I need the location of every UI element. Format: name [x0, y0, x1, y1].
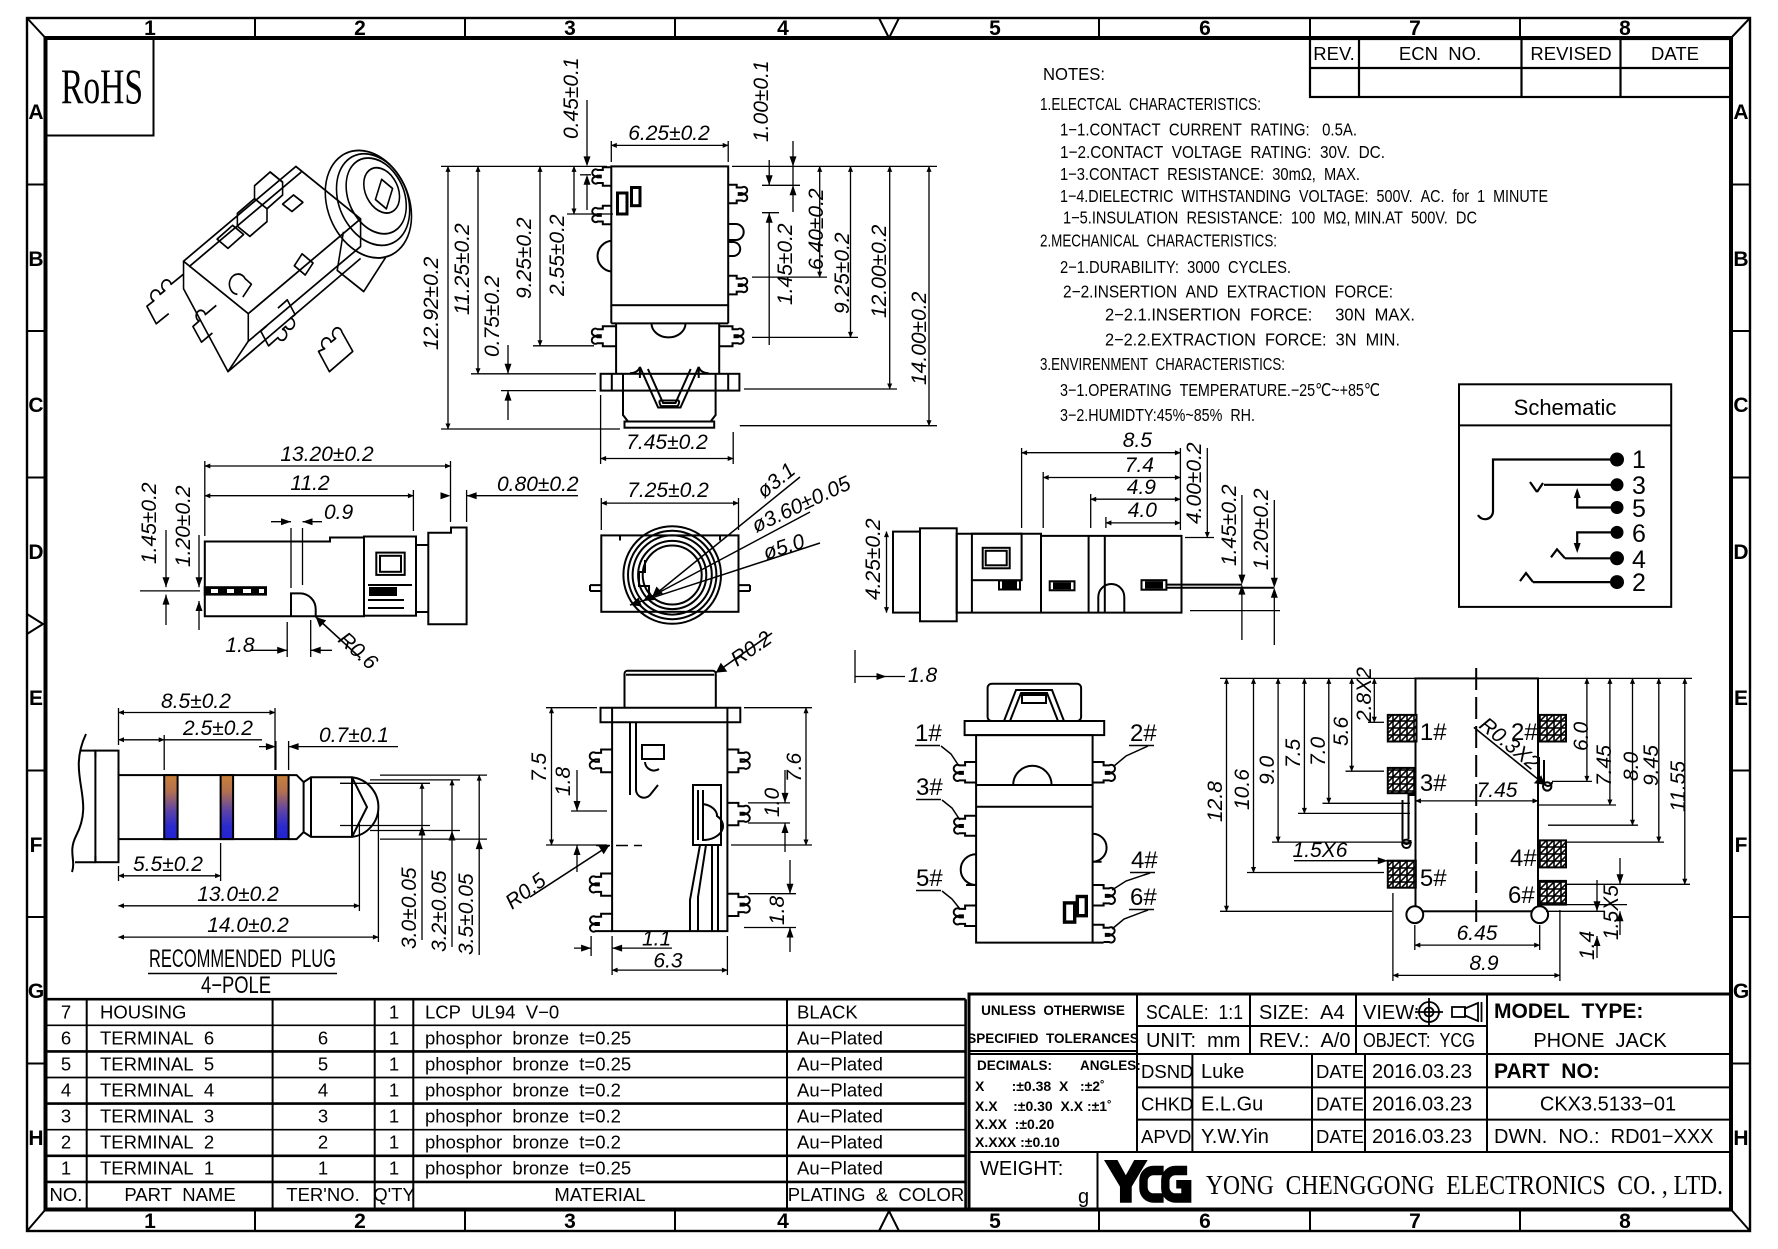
svg-text:3.5±0.05: 3.5±0.05 [455, 873, 478, 955]
svg-text:12.92±0.2: 12.92±0.2 [420, 256, 443, 350]
svg-text:1: 1 [389, 1132, 399, 1153]
svg-text:1.1: 1.1 [642, 928, 671, 951]
svg-text:5: 5 [61, 1054, 71, 1075]
svg-text:DECIMALS:: DECIMALS: [977, 1058, 1052, 1073]
svg-text:7.4: 7.4 [1125, 454, 1154, 477]
svg-text:2016.03.23: 2016.03.23 [1372, 1094, 1472, 1116]
svg-text:4: 4 [777, 17, 789, 40]
svg-text:phosphor bronze t=0.25: phosphor bronze t=0.25 [425, 1054, 631, 1075]
svg-text:H: H [1733, 1127, 1748, 1150]
svg-text:9.25±0.2: 9.25±0.2 [513, 217, 536, 299]
svg-text:3−1.OPERATING TEMPERATURE.−25: 3−1.OPERATING TEMPERATURE.−25℃~+85℃ [1060, 380, 1380, 400]
svg-text:2−2.2.EXTRACTION FORCE: 3N: 2−2.2.EXTRACTION FORCE: 3N MIN. [1105, 330, 1400, 350]
svg-text:X :±0.38 X :±2˚: X :±0.38 X :±2˚ [975, 1078, 1105, 1094]
svg-text:TERMINAL 3: TERMINAL 3 [100, 1106, 214, 1127]
svg-text:2.55±0.2: 2.55±0.2 [546, 214, 569, 297]
svg-text:VIEW:: VIEW: [1363, 1002, 1419, 1024]
svg-text:1.8: 1.8 [908, 664, 938, 687]
svg-text:7: 7 [1409, 17, 1421, 40]
svg-text:phosphor bronze t=0.25: phosphor bronze t=0.25 [425, 1028, 631, 1049]
svg-text:1: 1 [389, 1002, 399, 1023]
svg-text:7.45: 7.45 [1477, 779, 1518, 802]
svg-text:11.55: 11.55 [1667, 761, 1690, 812]
svg-text:6: 6 [1199, 1210, 1211, 1233]
svg-text:1.45±0.2: 1.45±0.2 [138, 482, 161, 564]
svg-text:CHKD: CHKD [1141, 1094, 1193, 1115]
svg-text:phosphor bronze t=0.2: phosphor bronze t=0.2 [425, 1106, 621, 1127]
svg-text:2#: 2# [1130, 720, 1157, 747]
svg-text:0.80±0.2: 0.80±0.2 [497, 473, 579, 496]
svg-text:1.0: 1.0 [761, 787, 784, 817]
svg-text:4: 4 [61, 1080, 71, 1101]
svg-text:2: 2 [61, 1132, 71, 1153]
svg-text:TERMINAL 6: TERMINAL 6 [100, 1028, 214, 1049]
svg-text:RoHS: RoHS [61, 58, 143, 114]
svg-text:7: 7 [1409, 1210, 1421, 1233]
svg-text:g: g [1078, 1186, 1089, 1208]
svg-text:phosphor bronze t=0.2: phosphor bronze t=0.2 [425, 1080, 621, 1101]
svg-text:NOTES:: NOTES: [1043, 64, 1105, 84]
svg-text:PART NO:: PART NO: [1494, 1060, 1600, 1083]
svg-text:3−2.HUMIDTY:45%~85% RH.: 3−2.HUMIDTY:45%~85% RH. [1060, 405, 1255, 425]
svg-text:13.20±0.2: 13.20±0.2 [280, 443, 374, 466]
svg-text:X.XXX :±0.10: X.XXX :±0.10 [975, 1134, 1060, 1150]
svg-text:D: D [1733, 541, 1748, 564]
svg-text:5.5±0.2: 5.5±0.2 [133, 853, 203, 876]
svg-text:1.5X5: 1.5X5 [1600, 885, 1623, 940]
svg-text:13.0±0.2: 13.0±0.2 [197, 883, 279, 906]
svg-text:6#: 6# [1508, 882, 1535, 909]
svg-text:1.20±0.2: 1.20±0.2 [172, 485, 195, 567]
svg-text:8.9: 8.9 [1469, 952, 1499, 975]
svg-text:C: C [1733, 394, 1748, 417]
svg-text:8: 8 [1619, 17, 1631, 40]
svg-text:5#: 5# [916, 865, 943, 892]
svg-text:7.5: 7.5 [1282, 738, 1305, 768]
svg-text:DATE: DATE [1316, 1061, 1364, 1082]
svg-text:3#: 3# [916, 774, 943, 801]
svg-text:1: 1 [389, 1028, 399, 1049]
svg-text:1−1.CONTACT CURRENT RATING:: 1−1.CONTACT CURRENT RATING: 0.5A. [1060, 120, 1357, 140]
svg-text:4#: 4# [1131, 847, 1158, 874]
svg-text:5: 5 [318, 1054, 328, 1075]
svg-text:2.MECHANICAL CHARACTERISTICS:: 2.MECHANICAL CHARACTERISTICS: [1040, 231, 1277, 251]
svg-text:7.0: 7.0 [1307, 736, 1330, 766]
svg-text:DATE: DATE [1316, 1126, 1364, 1147]
svg-text:Y.W.Yin: Y.W.Yin [1201, 1126, 1269, 1148]
svg-text:APVD: APVD [1141, 1126, 1191, 1147]
svg-text:0.7±0.1: 0.7±0.1 [319, 724, 389, 747]
svg-text:4.25±0.2: 4.25±0.2 [862, 518, 885, 600]
svg-text:8.5±0.2: 8.5±0.2 [161, 690, 231, 713]
svg-text:F: F [30, 834, 43, 857]
svg-text:1: 1 [389, 1054, 399, 1075]
svg-text:1.4: 1.4 [1576, 931, 1599, 960]
svg-text:DWN. NO.: RD01−XXX: DWN. NO.: RD01−XXX [1494, 1126, 1714, 1148]
svg-text:7: 7 [61, 1002, 71, 1023]
svg-text:4: 4 [777, 1210, 789, 1233]
svg-text:7.25±0.2: 7.25±0.2 [627, 479, 709, 502]
svg-text:14.00±0.2: 14.00±0.2 [908, 291, 931, 385]
svg-text:4: 4 [318, 1080, 328, 1101]
svg-text:1.45±0.2: 1.45±0.2 [1218, 484, 1241, 566]
svg-text:12.00±0.2: 12.00±0.2 [868, 224, 891, 318]
svg-text:6: 6 [1199, 17, 1211, 40]
svg-text:9.25±0.2: 9.25±0.2 [831, 232, 854, 314]
svg-text:1−5.INSULATION RESISTANCE: 1: 1−5.INSULATION RESISTANCE: 100 MΩ, MIN.A… [1063, 208, 1477, 228]
svg-text:Au−Plated: Au−Plated [797, 1080, 883, 1101]
svg-text:1.8: 1.8 [225, 634, 255, 657]
svg-text:12.8: 12.8 [1204, 781, 1227, 822]
svg-text:BLACK: BLACK [797, 1002, 858, 1023]
svg-text:PLATING & COLOR: PLATING & COLOR [788, 1184, 964, 1205]
svg-text:8.5: 8.5 [1123, 429, 1153, 452]
svg-text:H: H [28, 1127, 43, 1150]
svg-text:2−1.DURABILITY: 3000 CYCLES.: 2−1.DURABILITY: 3000 CYCLES. [1060, 257, 1291, 277]
svg-text:1: 1 [389, 1106, 399, 1127]
svg-text:DATE: DATE [1316, 1094, 1364, 1115]
svg-text:10.6: 10.6 [1231, 769, 1254, 810]
svg-text:6: 6 [61, 1028, 71, 1049]
svg-text:PART NAME: PART NAME [124, 1184, 235, 1205]
svg-text:TERMINAL 1: TERMINAL 1 [100, 1158, 214, 1179]
svg-text:2016.03.23: 2016.03.23 [1372, 1061, 1472, 1083]
svg-text:1.8: 1.8 [552, 766, 575, 796]
svg-text:7.5: 7.5 [528, 752, 551, 782]
svg-text:8: 8 [1619, 1210, 1631, 1233]
svg-text:A: A [28, 101, 43, 124]
svg-text:1.8: 1.8 [766, 895, 789, 925]
svg-text:HOUSING: HOUSING [100, 1002, 186, 1023]
svg-text:1: 1 [389, 1080, 399, 1101]
svg-text:REV.: REV. [1313, 43, 1354, 64]
svg-text:1.ELECTCAL CHARACTERISTICS:: 1.ELECTCAL CHARACTERISTICS: [1040, 94, 1261, 114]
svg-text:6.3: 6.3 [653, 950, 683, 973]
svg-text:SCALE: 1:1: SCALE: 1:1 [1146, 1002, 1243, 1024]
svg-text:3: 3 [318, 1106, 328, 1127]
svg-text:2016.03.23: 2016.03.23 [1372, 1126, 1472, 1148]
svg-text:2−2.1.INSERTION FORCE: 30: 2−2.1.INSERTION FORCE: 30N MAX. [1105, 305, 1415, 325]
svg-text:11.2: 11.2 [290, 472, 330, 495]
svg-text:G: G [28, 980, 44, 1003]
svg-text:0.9: 0.9 [324, 501, 354, 524]
svg-text:1.45±0.2: 1.45±0.2 [774, 223, 797, 305]
svg-text:1: 1 [389, 1158, 399, 1179]
svg-text:D: D [28, 541, 43, 564]
svg-text:G: G [1733, 980, 1749, 1003]
svg-text:F: F [1735, 834, 1748, 857]
svg-text:RECOMMENDED PLUG: RECOMMENDED PLUG [149, 945, 336, 973]
svg-text:UNLESS OTHERWISE: UNLESS OTHERWISE [981, 1003, 1125, 1018]
svg-text:PHONE JACK: PHONE JACK [1533, 1030, 1667, 1052]
svg-text:1.20±0.2: 1.20±0.2 [1250, 488, 1273, 570]
svg-text:5.6: 5.6 [1330, 716, 1353, 746]
svg-text:X.X :±0.30 X.X :±1˚: X.X :±0.30 X.X :±1˚ [975, 1098, 1112, 1114]
svg-text:1#: 1# [915, 720, 942, 747]
svg-text:3: 3 [564, 1210, 576, 1233]
svg-text:3: 3 [564, 17, 576, 40]
svg-text:3.0±0.05: 3.0±0.05 [398, 867, 421, 949]
svg-text:1−4.DIELECTRIC WITHSTANDING: 1−4.DIELECTRIC WITHSTANDING VOLTAGE: 500… [1060, 186, 1548, 206]
svg-text:X.XX :±0.20: X.XX :±0.20 [975, 1116, 1054, 1132]
svg-text:UNIT: mm: UNIT: mm [1146, 1030, 1240, 1052]
svg-text:1: 1 [1632, 446, 1646, 474]
svg-text:5: 5 [1632, 495, 1646, 523]
svg-text:ANGLES:: ANGLES: [1080, 1058, 1141, 1073]
svg-text:B: B [28, 248, 43, 271]
svg-text:5: 5 [989, 1210, 1001, 1233]
svg-text:SPECIFIED TOLERANCES: SPECIFIED TOLERANCES [967, 1031, 1139, 1046]
svg-text:6.45: 6.45 [1457, 922, 1498, 945]
svg-text:Au−Plated: Au−Plated [797, 1028, 883, 1049]
svg-text:2.5±0.2: 2.5±0.2 [182, 717, 253, 740]
svg-text:ECN NO.: ECN NO. [1399, 43, 1481, 64]
svg-text:7.6: 7.6 [783, 752, 806, 782]
svg-text:MODEL TYPE:: MODEL TYPE: [1494, 1000, 1643, 1023]
svg-text:6.0: 6.0 [1570, 721, 1593, 751]
svg-text:Luke: Luke [1201, 1061, 1244, 1083]
svg-text:2: 2 [354, 17, 366, 40]
svg-text:phosphor bronze t=0.25: phosphor bronze t=0.25 [425, 1158, 631, 1179]
svg-text:C: C [28, 394, 43, 417]
svg-text:0.45±0.1: 0.45±0.1 [560, 57, 583, 139]
svg-text:2: 2 [318, 1132, 328, 1153]
svg-text:TERMINAL 4: TERMINAL 4 [100, 1080, 214, 1101]
svg-text:Au−Plated: Au−Plated [797, 1158, 883, 1179]
svg-text:5: 5 [989, 17, 1001, 40]
svg-text:2.8X2: 2.8X2 [1353, 667, 1376, 723]
svg-text:2: 2 [354, 1210, 366, 1233]
svg-text:7.45: 7.45 [1593, 745, 1616, 786]
svg-text:REV.: A/0: REV.: A/0 [1259, 1030, 1351, 1052]
svg-text:E: E [1734, 687, 1748, 710]
svg-text:4.00±0.2: 4.00±0.2 [1183, 442, 1206, 524]
svg-text:1.00±0.1: 1.00±0.1 [750, 60, 773, 142]
svg-text:6.25±0.2: 6.25±0.2 [628, 122, 710, 145]
svg-text:Au−Plated: Au−Plated [797, 1106, 883, 1127]
svg-text:1: 1 [61, 1158, 71, 1179]
svg-text:1#: 1# [1420, 719, 1447, 746]
svg-text:3#: 3# [1420, 770, 1447, 797]
svg-text:4.0: 4.0 [1128, 499, 1158, 522]
svg-text:WEIGHT:: WEIGHT: [980, 1158, 1063, 1180]
svg-text:TERMINAL 2: TERMINAL 2 [100, 1132, 214, 1153]
svg-text:2: 2 [1632, 569, 1646, 597]
svg-text:TER'NO.: TER'NO. [286, 1184, 359, 1205]
svg-text:11.25±0.2: 11.25±0.2 [451, 223, 474, 315]
svg-text:TERMINAL 5: TERMINAL 5 [100, 1054, 214, 1075]
svg-text:A: A [1733, 101, 1748, 124]
svg-text:CKX3.5133−01: CKX3.5133−01 [1540, 1094, 1676, 1116]
svg-text:9.0: 9.0 [1256, 755, 1279, 785]
svg-text:6.40±0.2: 6.40±0.2 [805, 188, 828, 270]
svg-text:phosphor bronze t=0.2: phosphor bronze t=0.2 [425, 1132, 621, 1153]
svg-text:6#: 6# [1130, 884, 1157, 911]
svg-text:4.9: 4.9 [1127, 476, 1157, 499]
svg-text:E.L.Gu: E.L.Gu [1201, 1094, 1263, 1116]
svg-text:4#: 4# [1510, 845, 1537, 872]
svg-text:1: 1 [318, 1158, 328, 1179]
svg-text:NO.: NO. [50, 1184, 83, 1205]
svg-text:1−2.CONTACT VOLTAGE RATING:: 1−2.CONTACT VOLTAGE RATING: 30V. DC. [1060, 142, 1385, 162]
svg-text:Schematic: Schematic [1514, 395, 1617, 420]
svg-text:7.45±0.2: 7.45±0.2 [626, 431, 708, 454]
svg-text:1: 1 [144, 1210, 156, 1233]
svg-text:6: 6 [318, 1028, 328, 1049]
svg-text:REVISED: REVISED [1530, 43, 1611, 64]
svg-text:0.75±0.2: 0.75±0.2 [481, 275, 504, 357]
svg-text:DSND: DSND [1141, 1061, 1193, 1082]
svg-text:YONG CHENGGONG ELECTRONICS: YONG CHENGGONG ELECTRONICS CO. , LTD. [1206, 1170, 1723, 1200]
svg-text:14.0±0.2: 14.0±0.2 [207, 914, 289, 937]
svg-text:1−3.CONTACT RESISTANCE: 30mΩ: 1−3.CONTACT RESISTANCE: 30mΩ, MAX. [1060, 164, 1360, 184]
svg-text:3.2±0.05: 3.2±0.05 [428, 870, 451, 952]
svg-text:5#: 5# [1420, 865, 1447, 892]
svg-text:MATERIAL: MATERIAL [554, 1184, 645, 1205]
svg-text:3: 3 [61, 1106, 71, 1127]
svg-text:Au−Plated: Au−Plated [797, 1054, 883, 1075]
svg-text:SIZE: A4: SIZE: A4 [1259, 1002, 1345, 1024]
svg-text:1: 1 [144, 17, 156, 40]
svg-text:6: 6 [1632, 520, 1646, 548]
svg-text:3.ENVIRENMENT CHARACTERISTICS: 3.ENVIRENMENT CHARACTERISTICS: [1040, 354, 1285, 374]
svg-text:LCP UL94 V−0: LCP UL94 V−0 [425, 1002, 559, 1023]
svg-text:4−POLE: 4−POLE [201, 972, 271, 999]
svg-text:DATE: DATE [1651, 43, 1699, 64]
svg-text:Q'TY: Q'TY [373, 1184, 415, 1205]
svg-text:Au−Plated: Au−Plated [797, 1132, 883, 1153]
svg-text:OBJECT: YCG: OBJECT: YCG [1363, 1030, 1475, 1052]
svg-text:2−2.INSERTION AND EXTRACTION: 2−2.INSERTION AND EXTRACTION FORCE: [1063, 282, 1393, 302]
svg-text:E: E [29, 687, 43, 710]
svg-text:1.5X6: 1.5X6 [1293, 839, 1348, 862]
svg-text:9.45: 9.45 [1640, 745, 1663, 786]
svg-text:B: B [1733, 248, 1748, 271]
